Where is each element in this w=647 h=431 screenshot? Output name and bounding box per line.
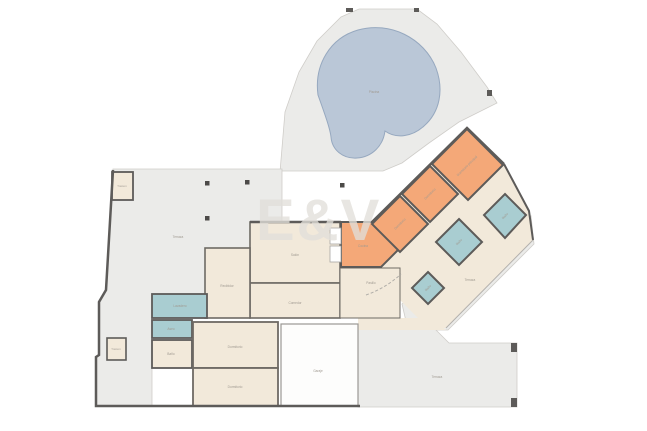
pillar	[245, 180, 250, 185]
label-terrace-left: Terraza	[173, 235, 184, 239]
wall-tick	[414, 8, 419, 12]
pillar	[205, 181, 210, 186]
pillar	[340, 183, 345, 188]
label-living: Salón	[291, 253, 299, 257]
pillar	[205, 216, 210, 221]
label-bedroom5: Dormitorio	[228, 385, 243, 389]
label-corridor: Pasillo	[366, 281, 376, 285]
floorplan-screenshot: E&V Piscina Terraza Terraza Terraza Saló…	[0, 0, 647, 431]
wall-tick	[511, 343, 517, 352]
label-pool: Piscina	[369, 90, 380, 94]
wall-tick	[346, 8, 353, 12]
label-dining: Comedor	[288, 301, 302, 305]
label-bath4: Baño	[167, 352, 175, 356]
label-kitchen: Cocina	[358, 244, 368, 248]
label-terrace-right: Terraza	[465, 278, 476, 282]
label-terrace-bottom: Terraza	[432, 375, 443, 379]
room-hall	[205, 248, 250, 318]
label-laundry: Lavadero	[173, 304, 187, 308]
wall-tick	[511, 398, 517, 407]
label-storage2: Trastero	[111, 347, 121, 351]
floorplan-drawing: E&V Piscina Terraza Terraza Terraza Saló…	[0, 0, 647, 431]
label-garage: Garaje	[313, 369, 323, 373]
wall-tick	[487, 90, 492, 96]
label-toilet: Aseo	[167, 327, 174, 331]
label-hall: Recibidor	[220, 284, 234, 288]
room-garage	[281, 324, 358, 406]
room-corridor	[340, 268, 400, 318]
bottom-terrace-area	[358, 326, 517, 407]
label-storage1: Trastero	[117, 184, 127, 188]
label-bedroom4: Dormitorio	[228, 345, 243, 349]
